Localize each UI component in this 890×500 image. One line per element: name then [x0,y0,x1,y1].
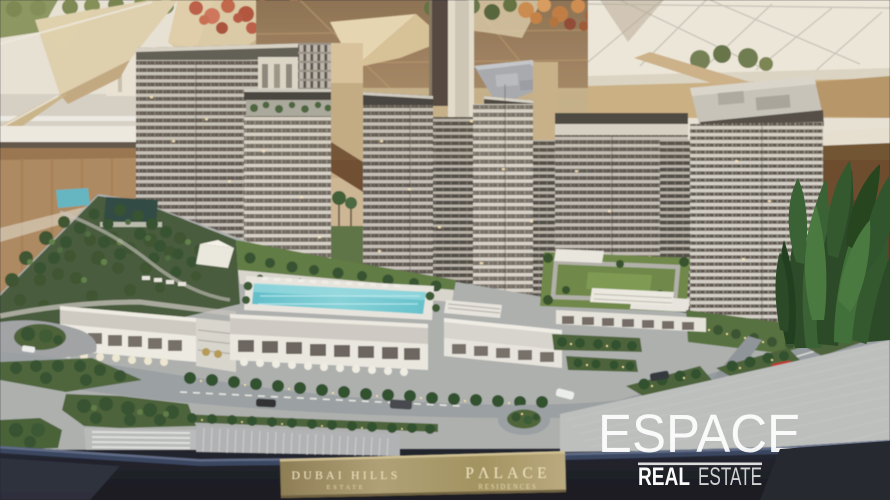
svg-text:REAL: REAL [638,463,690,491]
svg-text:ESTATE: ESTATE [698,463,762,491]
svg-text:ESPACE: ESPACE [598,404,801,464]
